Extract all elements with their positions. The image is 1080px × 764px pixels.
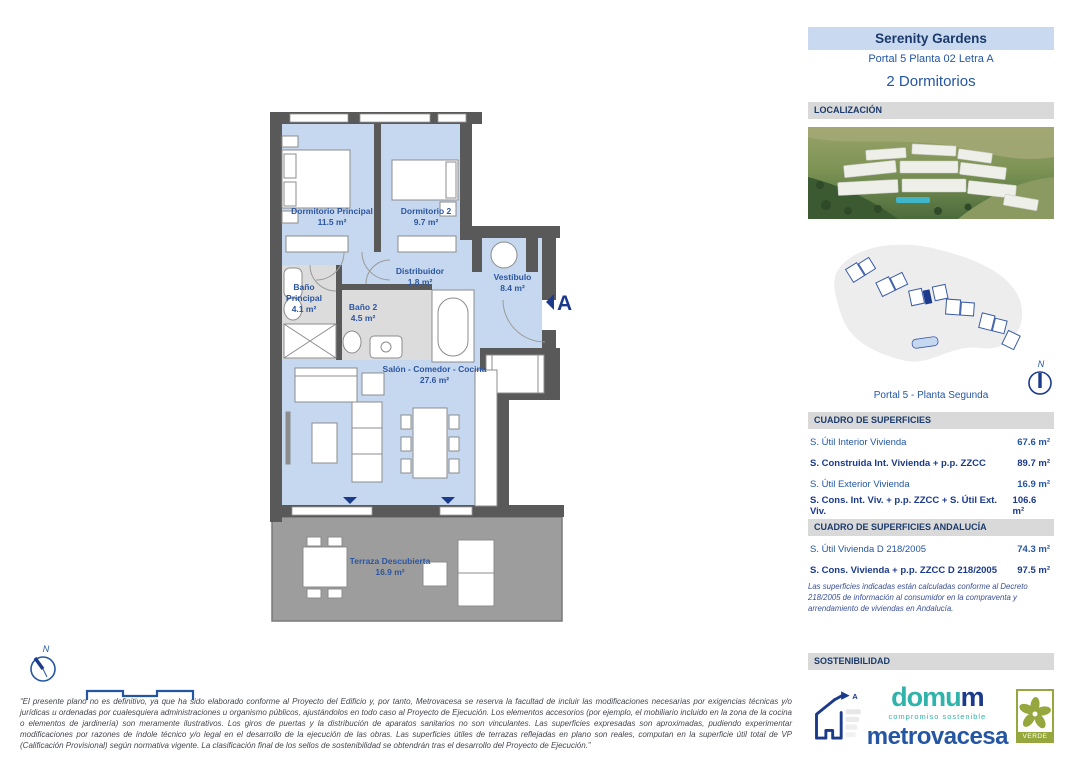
andalucia-note: Las superficies indicadas están calculad… [808, 582, 1054, 615]
compass-north-label: N [43, 644, 50, 654]
verde-label: VERDE [1018, 732, 1052, 741]
table-row: S. Cons. Vivienda + p.p. ZZCC D 218/2005… [808, 560, 1054, 581]
info-panel: Serenity Gardens Portal 5 Planta 02 Letr… [808, 0, 1054, 764]
energy-rating-house-icon: A [808, 684, 861, 748]
domum-logo: domum [891, 684, 984, 711]
section-sostenibilidad: SOSTENIBILIDAD [808, 653, 1054, 670]
table-row: S. Construida Int. Vivienda + p.p. ZZCC … [808, 453, 1054, 474]
table-row: S. Útil Vivienda D 218/2005 74.3 m² [808, 539, 1054, 560]
sustainability-logos: A domum compromiso sostenible metrovaces… [808, 676, 1054, 756]
brand-logos: domum compromiso sostenible metrovacesa [867, 684, 1008, 749]
verde-leaf-icon [1018, 696, 1052, 732]
site-plan [808, 226, 1054, 384]
unit-subtitle: Portal 5 Planta 02 Letra A [808, 53, 1054, 65]
verde-certification-badge: VERDE [1016, 689, 1054, 743]
plan-compass: N [26, 643, 62, 687]
site-plan-caption: Portal 5 - Planta Segunda [808, 390, 1054, 401]
bedrooms-subtitle: 2 Dormitorios [808, 73, 1054, 90]
floor-plan-drawing: A [270, 110, 620, 645]
metrovacesa-logo: metrovacesa [867, 725, 1008, 749]
section-andalucia: CUADRO DE SUPERFICIES ANDALUCÍA [808, 519, 1054, 536]
project-title: Serenity Gardens [808, 27, 1054, 50]
table-row: S. Cons. Int. Viv. + p.p. ZZCC + S. Útil… [808, 495, 1054, 516]
entrance-letter: A [557, 292, 572, 315]
domum-tagline: compromiso sostenible [889, 712, 987, 721]
table-row: S. Útil Interior Vivienda 67.6 m² [808, 432, 1054, 453]
legal-disclaimer: “El presente plano no es definitivo, ya … [20, 696, 792, 751]
section-superficies: CUADRO DE SUPERFICIES [808, 412, 1054, 429]
location-photo [808, 127, 1054, 219]
energy-rating-letter: A [852, 692, 858, 701]
compass-north-label: N [1038, 359, 1045, 369]
table-row: S. Útil Exterior Vivienda 16.9 m² [808, 474, 1054, 495]
section-localizacion: LOCALIZACIÓN [808, 102, 1054, 119]
